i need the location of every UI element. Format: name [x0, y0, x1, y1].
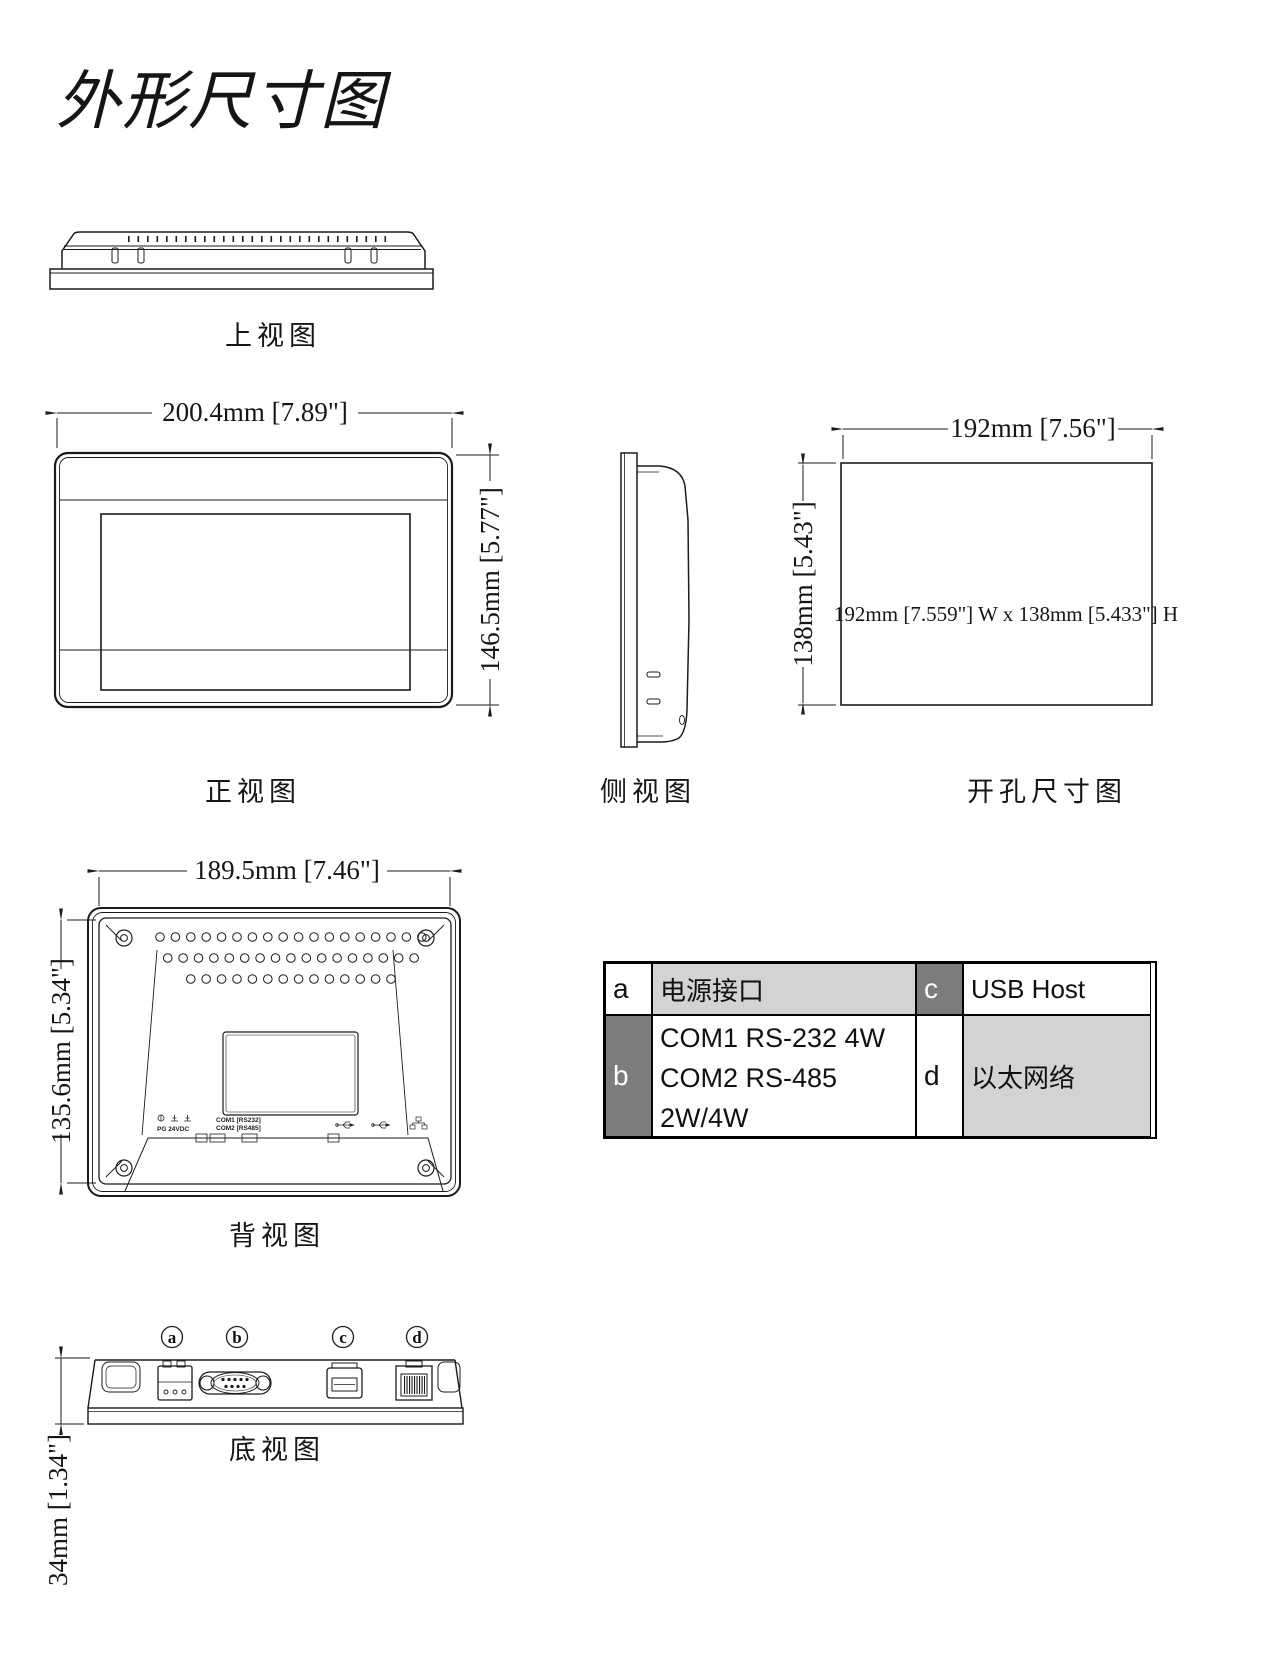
cutout-rectangle [841, 463, 1152, 705]
power-marking-text: PG 24VDC [157, 1126, 189, 1133]
back-bezel [88, 908, 460, 1196]
legend-key-b: b [605, 1015, 652, 1137]
top-slot [138, 248, 144, 263]
bottom-view-drawing: a b c d [40, 1320, 480, 1435]
top-slot [345, 248, 351, 263]
legend-value-a: 电源接口 [652, 963, 916, 1015]
back-width-dim-text: 189.5mm [7.46"] [194, 855, 380, 885]
power-terminal-connector [158, 1361, 192, 1400]
bottom-bezel [88, 1408, 463, 1424]
side-view-bezel [621, 453, 637, 747]
top-view-body [62, 232, 425, 269]
top-view-drawing [40, 205, 440, 300]
top-view-bezel-flange [50, 269, 433, 289]
legend-value-b-line3: 2W/4W [660, 1098, 915, 1137]
label-plate [223, 1032, 358, 1115]
side-screw [680, 716, 685, 725]
back-width-dimension: 189.5mm [7.46"] [99, 855, 450, 906]
back-body [99, 918, 451, 1191]
top-slot [371, 248, 377, 263]
side-view-drawing [575, 420, 705, 765]
cutout-width-dim-text: 192mm [7.56"] [950, 413, 1116, 443]
cutout-note-text: 192mm [7.559"] W x 138mm [5.433"] H [834, 602, 1178, 626]
usb-symbol-icon [336, 1122, 354, 1128]
side-slot [647, 699, 660, 704]
legend-value-d: 以太网络 [963, 1015, 1151, 1137]
com1-marking-text: COM1 [RS232] [216, 1117, 261, 1124]
usb-symbol-icon [372, 1122, 390, 1128]
ethernet-symbol-icon [410, 1117, 427, 1129]
back-height-dim-text: 135.6mm [5.34"] [46, 958, 76, 1144]
front-width-dim-text: 200.4mm [7.89"] [162, 397, 348, 427]
front-height-dim-text: 146.5mm [5.77"] [475, 487, 505, 673]
vent-holes [156, 933, 426, 984]
legend-value-b-line2: COM2 RS-485 [660, 1058, 915, 1098]
cutout-width-dimension: 192mm [7.56"] [843, 413, 1152, 459]
ethernet-rj45-connector [396, 1361, 432, 1400]
legend-value-c: USB Host [963, 963, 1151, 1015]
front-view-drawing: 200.4mm [7.89"] 146.5mm [5.77"] [40, 385, 510, 720]
back-view-label: 背视图 [167, 1214, 387, 1253]
legend-key-a: a [605, 963, 652, 1015]
side-view-label: 侧视图 [538, 770, 758, 809]
depth-dimension [55, 1358, 90, 1424]
callout-d: d [412, 1328, 422, 1347]
legend-key-d: d [916, 1015, 963, 1137]
front-bezel [55, 453, 452, 707]
depth-dim-text: 34mm [1.34"] [43, 1420, 71, 1600]
drawing-sheet: 外形尺寸图 上视图 200.4mm [7.89"] [0, 0, 1280, 1669]
legend-value-b: COM1 RS-232 4W COM2 RS-485 2W/4W [652, 1015, 916, 1137]
cutout-height-dimension: 138mm [5.43"] [788, 463, 836, 705]
callout-a: a [168, 1328, 177, 1347]
side-view-body [637, 466, 689, 742]
corner-screws [116, 930, 434, 1176]
usb-host-connector [327, 1363, 362, 1398]
cutout-height-dim-text: 138mm [5.43"] [788, 501, 818, 667]
page-title: 外形尺寸图 [56, 50, 386, 142]
connector-legend-table: a 电源接口 c USB Host b COM1 RS-232 4W COM2 … [603, 961, 1157, 1139]
cutout-drawing: 192mm [7.56"] 138mm [5.43"] 192mm [7.559… [740, 385, 1180, 725]
bottom-view-label: 底视图 [167, 1428, 387, 1467]
display-screen [101, 514, 410, 690]
back-view-drawing: 189.5mm [7.46"] 135.6mm [5.34"] [40, 800, 520, 1205]
legend-value-b-line1: COM1 RS-232 4W [660, 1018, 915, 1058]
port-markings: PG 24VDC COM1 [RS232] COM2 [RS485] [157, 1115, 427, 1133]
connector-bay [125, 1138, 443, 1191]
top-slot [112, 248, 118, 263]
callout-bubbles: a b c d [162, 1327, 428, 1348]
front-height-dimension: 146.5mm [5.77"] [456, 455, 505, 705]
legend-key-c: c [916, 963, 963, 1015]
callout-c: c [339, 1328, 347, 1347]
com2-marking-text: COM2 [RS485] [216, 1125, 261, 1132]
side-slot [647, 672, 660, 677]
callout-b: b [232, 1328, 241, 1347]
db9-serial-connector [199, 1372, 271, 1394]
ground-symbol-icon [158, 1115, 191, 1121]
cutout-view-label: 开孔尺寸图 [937, 770, 1157, 809]
top-view-label: 上视图 [163, 314, 383, 353]
front-width-dimension: 200.4mm [7.89"] [57, 397, 452, 448]
